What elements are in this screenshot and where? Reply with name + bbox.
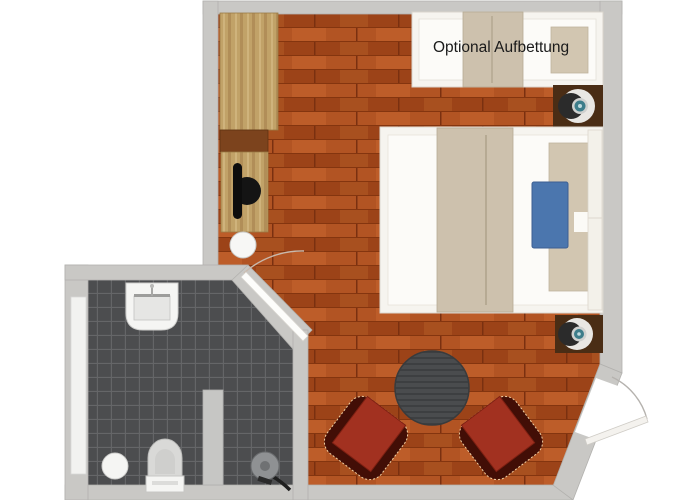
- toilet: [146, 439, 184, 492]
- headboard: [588, 130, 602, 310]
- nightstand-bottom: [555, 315, 603, 353]
- wardrobe-shelf: [220, 130, 268, 152]
- optional-bed-label: Optional Aufbettung: [433, 39, 569, 56]
- radiator: [71, 297, 86, 474]
- wall-bottom: [65, 485, 573, 500]
- bed-blue-cushion: [532, 182, 568, 248]
- double-bed: [380, 127, 603, 313]
- wall-left-bedroom: [203, 1, 218, 277]
- stool: [230, 232, 256, 258]
- partition-wall: [203, 390, 223, 485]
- nightstand-top: [553, 85, 603, 127]
- waste-bin: [102, 453, 128, 479]
- floor-plan: Optional Aufbettung: [0, 0, 700, 500]
- wardrobe: [220, 13, 278, 130]
- round-table: [395, 351, 469, 425]
- wall-right-bathroom: [293, 330, 308, 500]
- bed-blanket: [437, 128, 513, 312]
- sink: [126, 283, 178, 330]
- wall-top-bathroom: [65, 265, 248, 280]
- floor-plan-canvas: Optional Aufbettung: [0, 0, 700, 500]
